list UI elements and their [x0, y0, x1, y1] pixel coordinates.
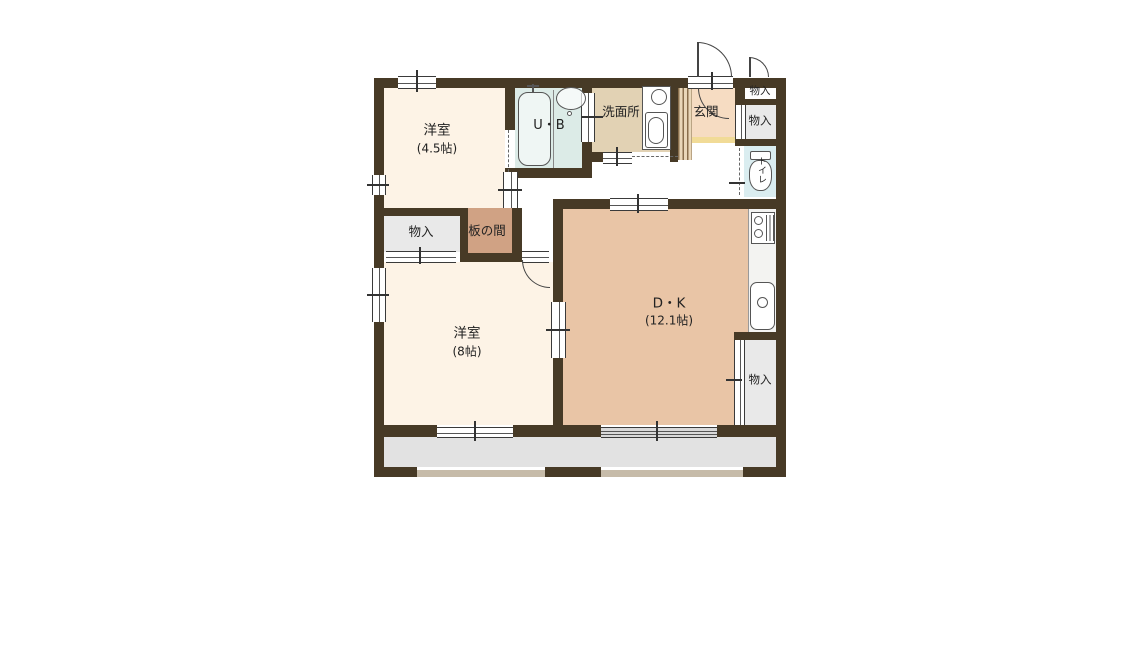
stove-burner-1 — [754, 216, 763, 225]
sliding-door-storage-left — [386, 251, 456, 263]
wall-45-right-upper — [505, 78, 515, 130]
balcony — [384, 437, 776, 467]
label-washroom: 洗面所 — [602, 105, 640, 119]
sliding-door-storage-right — [735, 105, 746, 139]
wall-left-mid — [374, 195, 384, 268]
stove-grill-icon — [766, 215, 774, 241]
wall-balcony-3 — [743, 467, 786, 477]
washing-machine-drum — [648, 117, 664, 144]
label-wood-floor: 板の間 — [468, 224, 506, 238]
wall-bottom-2 — [513, 425, 601, 437]
wall-storage-left-top — [374, 208, 468, 216]
wall-washroom-bottom — [590, 152, 603, 162]
bath-faucet-bar — [527, 85, 539, 87]
tick-window-bottom2 — [656, 421, 658, 441]
wall-storage-bottom-top — [734, 332, 776, 340]
label-dk: D・K — [653, 297, 686, 312]
tick-door-washroom — [616, 147, 618, 166]
outer-closet-door-swing — [749, 57, 769, 77]
tick-slider-storage-bottom — [726, 379, 742, 381]
label-entrance: 玄関 — [693, 105, 718, 119]
stove-burner-2 — [754, 229, 763, 238]
kitchen-faucet-icon — [757, 297, 768, 308]
label-west45: 洋室 — [424, 124, 451, 139]
label-storage-bottom: 物入 — [749, 374, 772, 387]
wall-washroom-entrance — [670, 78, 678, 162]
bath-drain-icon — [567, 111, 572, 116]
wall-dk-west-lower — [553, 358, 563, 425]
opening-washroom-dashed — [632, 156, 678, 157]
sliding-door-dk — [610, 198, 668, 211]
door-toilet-dashed — [739, 148, 740, 195]
wall-under-storage-right — [735, 139, 776, 146]
wall-right — [776, 78, 786, 477]
washstand-sink-icon — [651, 89, 667, 105]
door-washroom — [603, 152, 632, 164]
entrance-step — [692, 137, 735, 143]
tick-window-left1 — [367, 184, 389, 186]
wall-dk-west-upper — [553, 209, 563, 302]
wall-woodfloor-bottom — [468, 253, 512, 262]
wall-woodfloor-right — [512, 208, 522, 262]
balcony-railing-right — [601, 470, 743, 477]
tick-window-left2 — [367, 294, 389, 296]
wall-ub-bottom — [505, 168, 592, 178]
label-west8-size: (8帖) — [453, 345, 482, 358]
window-bottom-dk — [601, 427, 717, 438]
label-storage-top: 物入 — [750, 86, 771, 98]
label-storage-right: 物入 — [749, 115, 772, 128]
tick-door-west45 — [498, 189, 522, 191]
tick-slider-dk — [637, 194, 639, 213]
entrance-door-swing — [697, 42, 732, 77]
opening-west45-dashed — [508, 130, 509, 172]
wall-dk-top-2 — [668, 199, 776, 209]
tick-slider-storage-left — [419, 247, 421, 264]
wall-balcony-2 — [545, 467, 601, 477]
label-west45-size: (4.5帖) — [417, 142, 457, 155]
label-unit-bath: U・B — [533, 119, 564, 133]
label-storage-left: 物入 — [408, 225, 433, 239]
wall-bottom-3 — [717, 425, 786, 437]
tick-door-ub — [581, 116, 603, 118]
tick-window-bottom1 — [474, 421, 476, 441]
bath-basin-icon — [556, 87, 586, 110]
room-dk-lower — [563, 332, 734, 425]
floor-plan: 洋室 (4.5帖) U・B 洗面所 玄関 物入 物入 トイレ 物入 板の間 洋室… — [0, 0, 1140, 670]
wall-bottom-1 — [374, 425, 437, 437]
wall-ub-right-a — [582, 78, 592, 93]
wall-dk-top-1 — [553, 199, 610, 209]
label-dk-size: (12.1帖) — [645, 314, 693, 327]
wall-left-upper — [374, 78, 384, 175]
sliding-door-storage-bottom — [734, 340, 745, 425]
tick-opening-west8 — [546, 329, 570, 331]
wall-left-lower — [374, 322, 384, 477]
wall-storage-left-right — [460, 208, 468, 262]
tick-door-toilet — [729, 182, 745, 184]
tick-window-top — [416, 70, 418, 92]
label-west8: 洋室 — [454, 327, 481, 342]
wall-balcony-1 — [374, 467, 417, 477]
balcony-railing-left — [417, 470, 545, 477]
entrance-step-stripes — [678, 84, 692, 160]
label-toilet: トイレ — [755, 157, 765, 184]
